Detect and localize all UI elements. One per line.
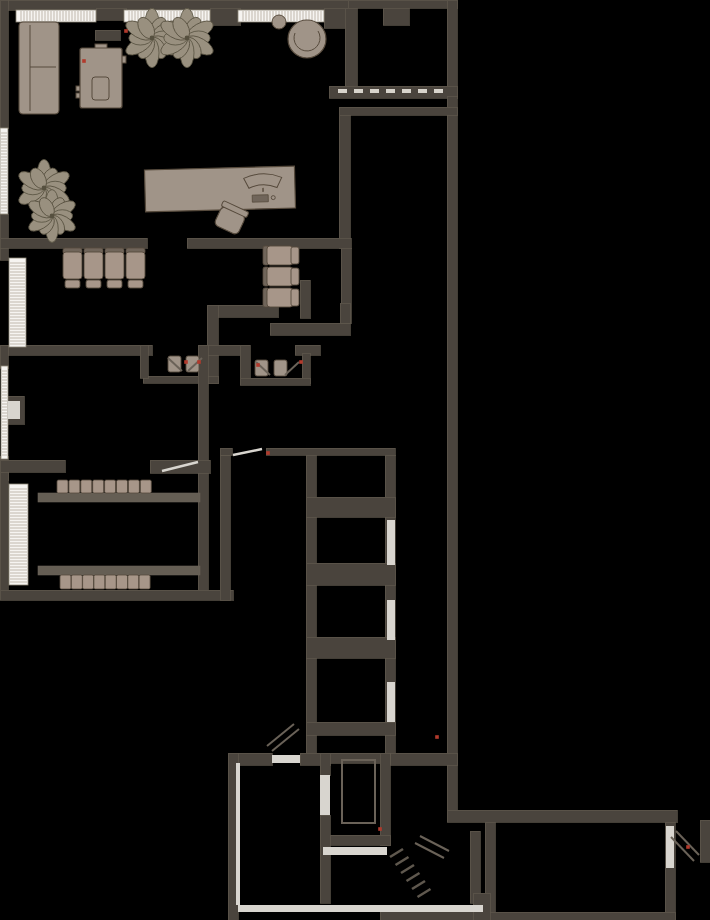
glazing-dash bbox=[338, 89, 347, 93]
wall bbox=[207, 305, 218, 383]
wall bbox=[300, 280, 310, 318]
stove-unit bbox=[80, 48, 122, 108]
red-marker bbox=[435, 735, 439, 739]
wall bbox=[306, 637, 395, 658]
wall bbox=[383, 8, 409, 25]
wall bbox=[210, 8, 240, 25]
door-opening bbox=[238, 905, 483, 912]
stair-step bbox=[407, 873, 420, 881]
wall bbox=[0, 238, 147, 248]
shaft-layer bbox=[342, 760, 375, 823]
glazing-dash bbox=[354, 89, 363, 93]
wall bbox=[220, 455, 230, 600]
plant-center bbox=[150, 36, 155, 41]
classroom-chair bbox=[81, 480, 92, 493]
door-leaf bbox=[272, 729, 299, 751]
seat bbox=[84, 248, 103, 288]
wc-fixture bbox=[186, 356, 199, 372]
wall bbox=[700, 820, 710, 862]
wall bbox=[306, 563, 395, 585]
wall bbox=[266, 448, 395, 455]
seat-footrest bbox=[86, 280, 101, 288]
wall bbox=[0, 345, 8, 368]
keyboard-icon bbox=[252, 195, 268, 202]
window bbox=[0, 128, 8, 214]
seat-body bbox=[105, 252, 124, 279]
classroom-chair bbox=[60, 575, 71, 589]
stair-step bbox=[390, 849, 403, 857]
walls-layer bbox=[0, 0, 710, 920]
seat-footrest bbox=[291, 268, 299, 285]
classroom-chair bbox=[117, 480, 128, 493]
wall bbox=[306, 722, 395, 735]
door-opening bbox=[320, 775, 330, 815]
wall bbox=[470, 831, 480, 903]
floor-plan bbox=[0, 0, 710, 920]
shaft-outline bbox=[342, 760, 375, 823]
seat bbox=[263, 267, 299, 286]
door-leaf bbox=[676, 831, 699, 855]
wall bbox=[447, 96, 457, 812]
wall bbox=[0, 460, 65, 472]
window bbox=[9, 258, 26, 347]
door-leaf bbox=[233, 449, 262, 455]
wall bbox=[95, 30, 120, 40]
classroom-chair bbox=[83, 575, 94, 589]
glazing-dash bbox=[402, 89, 411, 93]
classroom-chair bbox=[93, 480, 104, 493]
wall bbox=[320, 815, 330, 903]
seat-body bbox=[126, 252, 145, 279]
stair-step bbox=[412, 881, 425, 889]
wall bbox=[340, 303, 350, 323]
wall bbox=[0, 0, 348, 10]
glazing-dash bbox=[386, 89, 395, 93]
wall bbox=[306, 497, 395, 517]
classroom-chair bbox=[94, 575, 105, 589]
plant-center bbox=[42, 186, 47, 191]
seat bbox=[105, 248, 124, 288]
seat bbox=[63, 248, 82, 288]
seat bbox=[263, 246, 299, 265]
door-opening bbox=[387, 682, 395, 722]
red-marker bbox=[82, 59, 86, 63]
classroom-chair bbox=[139, 575, 150, 589]
wall bbox=[320, 753, 330, 775]
wall bbox=[240, 345, 250, 382]
seat-body bbox=[267, 288, 293, 307]
classroom-chair bbox=[69, 480, 80, 493]
wall bbox=[447, 810, 677, 822]
furniture-layer bbox=[16, 8, 326, 589]
seat-footrest bbox=[65, 280, 80, 288]
classroom-chair bbox=[117, 575, 128, 589]
red-marker bbox=[197, 360, 201, 364]
wall bbox=[220, 448, 232, 455]
plant-center bbox=[50, 214, 55, 219]
stair-step bbox=[401, 865, 414, 873]
wall bbox=[204, 345, 240, 355]
seat bbox=[126, 248, 145, 288]
stair-step bbox=[418, 889, 431, 897]
door-opening bbox=[666, 826, 674, 868]
classroom-chair bbox=[105, 480, 116, 493]
seat-footrest bbox=[107, 280, 122, 288]
wall bbox=[447, 0, 457, 96]
wall bbox=[345, 8, 357, 88]
seat-body bbox=[84, 252, 103, 279]
door-leaf bbox=[267, 724, 294, 746]
red-marker bbox=[124, 29, 128, 33]
wall bbox=[339, 115, 350, 248]
red-marker bbox=[256, 363, 260, 367]
red-marker bbox=[299, 360, 303, 364]
stair-step bbox=[396, 857, 409, 865]
wall bbox=[0, 214, 8, 260]
glazing-dash bbox=[434, 89, 443, 93]
classroom-chair bbox=[105, 575, 116, 589]
classroom-chair bbox=[140, 480, 151, 493]
door-opening bbox=[387, 520, 395, 565]
desk-group bbox=[144, 166, 295, 212]
sofa bbox=[19, 22, 59, 114]
wall bbox=[0, 590, 233, 600]
wall bbox=[380, 753, 390, 845]
wall bbox=[140, 345, 148, 378]
seat-body bbox=[267, 267, 293, 286]
glazing-dash bbox=[370, 89, 379, 93]
seat-footrest bbox=[291, 289, 299, 306]
seat-body bbox=[63, 252, 82, 279]
counter bbox=[38, 493, 200, 502]
side-table bbox=[272, 15, 286, 29]
seat-footrest bbox=[291, 247, 299, 264]
wall bbox=[240, 378, 310, 385]
red-marker bbox=[686, 845, 690, 849]
wall bbox=[96, 8, 126, 20]
red-marker bbox=[378, 827, 382, 831]
counter bbox=[38, 566, 200, 575]
red-marker bbox=[184, 360, 188, 364]
classroom-chair bbox=[128, 575, 139, 589]
floor-plan-canvas bbox=[0, 0, 710, 920]
wall bbox=[0, 0, 8, 128]
plant-center bbox=[185, 36, 190, 41]
stairs-layer bbox=[390, 849, 431, 897]
wall bbox=[330, 835, 390, 845]
door-opening bbox=[236, 763, 240, 905]
wall bbox=[390, 753, 457, 765]
classroom-chair bbox=[57, 480, 68, 493]
glazing-dash bbox=[418, 89, 427, 93]
seat-body bbox=[267, 246, 293, 265]
door-opening bbox=[323, 847, 387, 855]
classroom-chair bbox=[71, 575, 82, 589]
desk bbox=[144, 166, 295, 212]
classroom-chair bbox=[128, 480, 139, 493]
wall bbox=[485, 912, 675, 920]
door-opening bbox=[387, 600, 395, 640]
door-opening bbox=[8, 401, 20, 419]
wall bbox=[270, 323, 350, 335]
seat-footrest bbox=[128, 280, 143, 288]
wall bbox=[348, 0, 457, 8]
seat bbox=[263, 288, 299, 307]
wall bbox=[339, 107, 457, 115]
doors-layer bbox=[162, 358, 699, 861]
wall bbox=[0, 472, 8, 592]
door-opening bbox=[272, 755, 300, 763]
red-marker bbox=[266, 451, 270, 455]
